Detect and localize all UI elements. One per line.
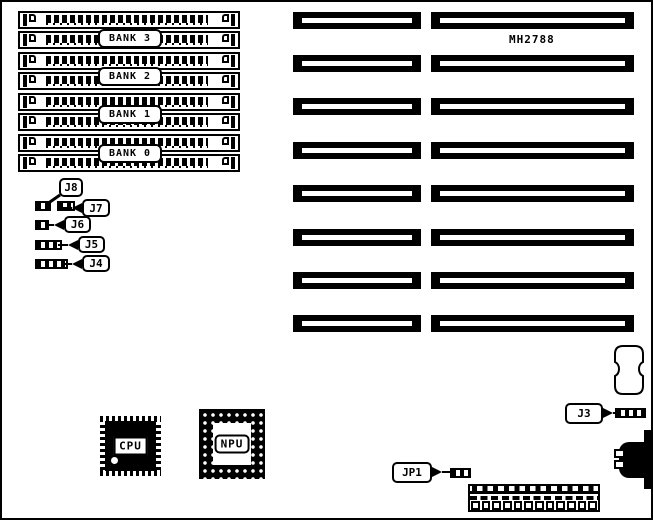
bank-1-label: BANK 1 bbox=[98, 105, 162, 124]
simm-slot bbox=[18, 11, 240, 29]
simm-latch-right bbox=[217, 14, 235, 26]
npu-chip: NPU bbox=[199, 409, 265, 479]
keyboard-connector-notch bbox=[614, 449, 625, 458]
cpu-label: CPU bbox=[113, 437, 148, 456]
isa-slot-16bit bbox=[431, 55, 634, 72]
jumper-label-jp1: JP1 bbox=[392, 462, 432, 483]
isa-slot-16bit bbox=[431, 315, 634, 332]
isa-slot-8bit bbox=[293, 229, 421, 246]
jumper-label-j6: J6 bbox=[64, 216, 91, 233]
battery-outline bbox=[614, 345, 644, 395]
simm-latch-right bbox=[217, 96, 235, 108]
simm-latch-left bbox=[23, 96, 41, 108]
jumper-block-j6 bbox=[35, 220, 49, 230]
cpu-pin1-dot bbox=[111, 457, 118, 464]
jumper-label-j3: J3 bbox=[565, 403, 603, 424]
bank-2-label: BANK 2 bbox=[98, 67, 162, 86]
simm-latch-right bbox=[217, 137, 235, 149]
bank-3-label: BANK 3 bbox=[98, 29, 162, 48]
isa-slot-8bit bbox=[293, 55, 421, 72]
simm-latch-right bbox=[217, 75, 235, 87]
npu-label: NPU bbox=[215, 435, 250, 454]
simm-latch-right bbox=[217, 34, 235, 46]
isa-slot-8bit bbox=[293, 272, 421, 289]
npu-body: NPU bbox=[213, 423, 251, 465]
jumper-label-j8: J8 bbox=[59, 178, 83, 197]
jumper-block-j7 bbox=[57, 201, 75, 211]
isa-slot-16bit bbox=[431, 229, 634, 246]
simm-latch-left bbox=[23, 34, 41, 46]
isa-slot-8bit bbox=[293, 185, 421, 202]
power-connector-pins bbox=[470, 486, 598, 495]
isa-slot-8bit bbox=[293, 315, 421, 332]
jumper-block-j5 bbox=[35, 240, 62, 250]
jumper-label-j5: J5 bbox=[78, 236, 105, 253]
isa-slot-16bit bbox=[431, 272, 634, 289]
simm-latch-left bbox=[23, 116, 41, 128]
keyboard-connector-notch bbox=[614, 460, 625, 469]
power-connector bbox=[468, 484, 600, 512]
power-connector-sockets bbox=[470, 501, 598, 510]
isa-slot-8bit bbox=[293, 12, 421, 29]
jumper-label-j4: J4 bbox=[82, 255, 110, 272]
simm-latch-right bbox=[217, 157, 235, 169]
cpu-body: CPU bbox=[105, 421, 156, 471]
motherboard-diagram: BANK 3 BANK 2 BANK 1 BANK 0 MH2788 J8 J7… bbox=[0, 0, 653, 520]
jumper-block-j8 bbox=[35, 201, 51, 211]
simm-pin-comb bbox=[46, 56, 208, 66]
isa-slot-16bit bbox=[431, 12, 634, 29]
simm-latch-left bbox=[23, 157, 41, 169]
bank-0-label: BANK 0 bbox=[98, 144, 162, 163]
simm-latch-left bbox=[23, 75, 41, 87]
jumper-block-j3 bbox=[615, 408, 646, 418]
isa-slot-8bit bbox=[293, 142, 421, 159]
cpu-chip: CPU bbox=[100, 416, 161, 476]
power-connector-contacts bbox=[470, 496, 598, 500]
jumper-label-j7: J7 bbox=[82, 199, 110, 217]
simm-pin-comb bbox=[46, 15, 208, 25]
simm-latch-left bbox=[23, 14, 41, 26]
isa-slot-8bit bbox=[293, 98, 421, 115]
simm-latch-left bbox=[23, 137, 41, 149]
simm-latch-right bbox=[217, 55, 235, 67]
simm-latch-right bbox=[217, 116, 235, 128]
jumper-block-j4 bbox=[35, 259, 68, 269]
simm-latch-left bbox=[23, 55, 41, 67]
jumper-block-jp1 bbox=[450, 468, 471, 478]
isa-slot-16bit bbox=[431, 98, 634, 115]
isa-slot-16bit bbox=[431, 185, 634, 202]
isa-slot-16bit bbox=[431, 142, 634, 159]
model-code-text: MH2788 bbox=[509, 33, 555, 46]
